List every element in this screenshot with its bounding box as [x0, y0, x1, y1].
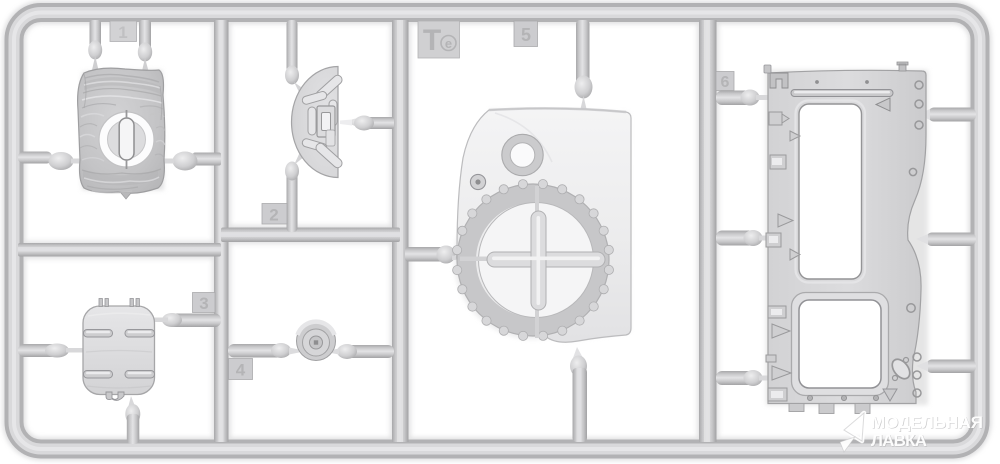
- svg-text:6: 6: [721, 74, 730, 91]
- svg-text:ЛАВКА: ЛАВКА: [871, 431, 927, 450]
- svg-text:1: 1: [118, 23, 127, 42]
- svg-text:4: 4: [236, 361, 246, 380]
- svg-text:3: 3: [199, 294, 208, 313]
- svg-text:МОДЕЛЬНАЯ: МОДЕЛЬНАЯ: [871, 413, 983, 432]
- svg-text:5: 5: [521, 25, 531, 45]
- svg-text:e: e: [445, 36, 452, 51]
- svg-text:T: T: [423, 24, 441, 57]
- svg-text:2: 2: [269, 206, 278, 225]
